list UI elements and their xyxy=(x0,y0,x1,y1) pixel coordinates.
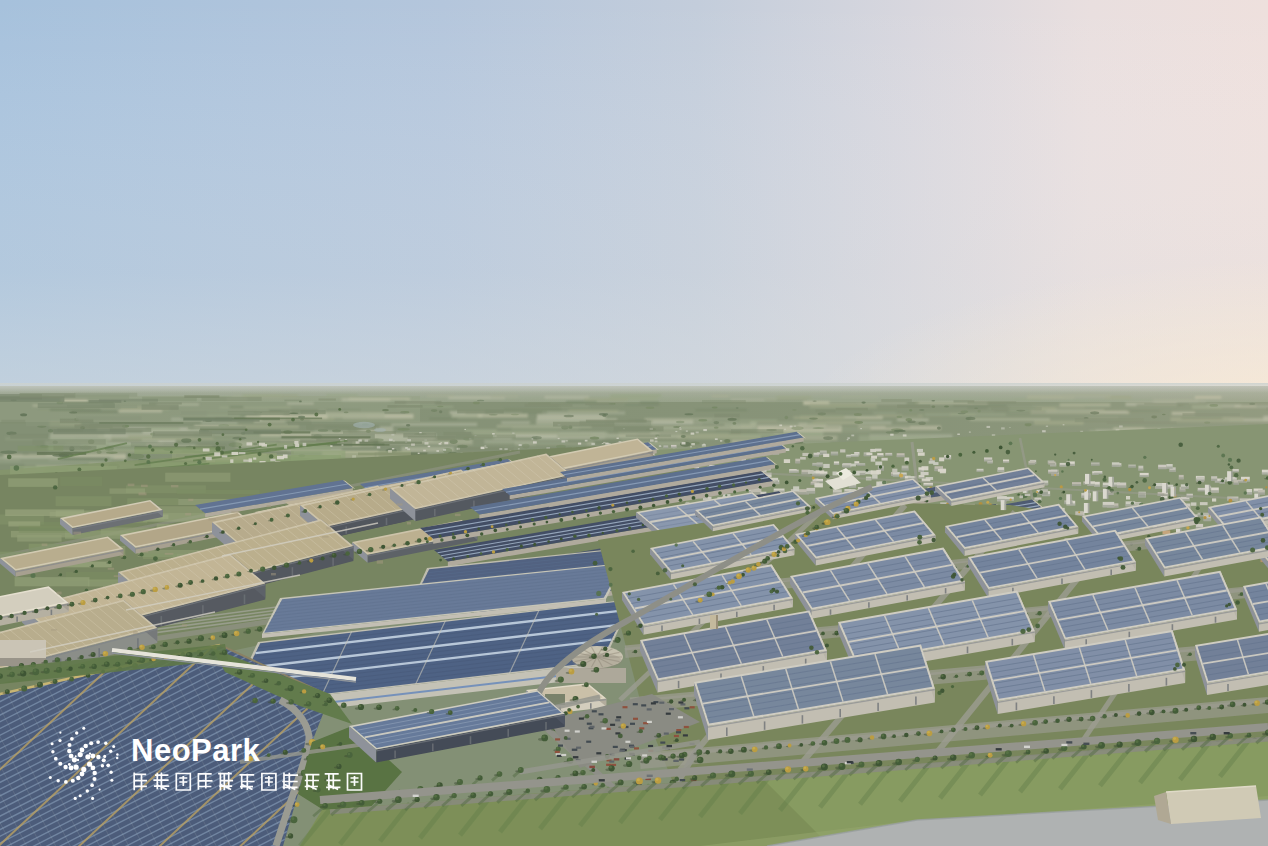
svg-text:NeoPark: NeoPark xyxy=(131,733,261,768)
